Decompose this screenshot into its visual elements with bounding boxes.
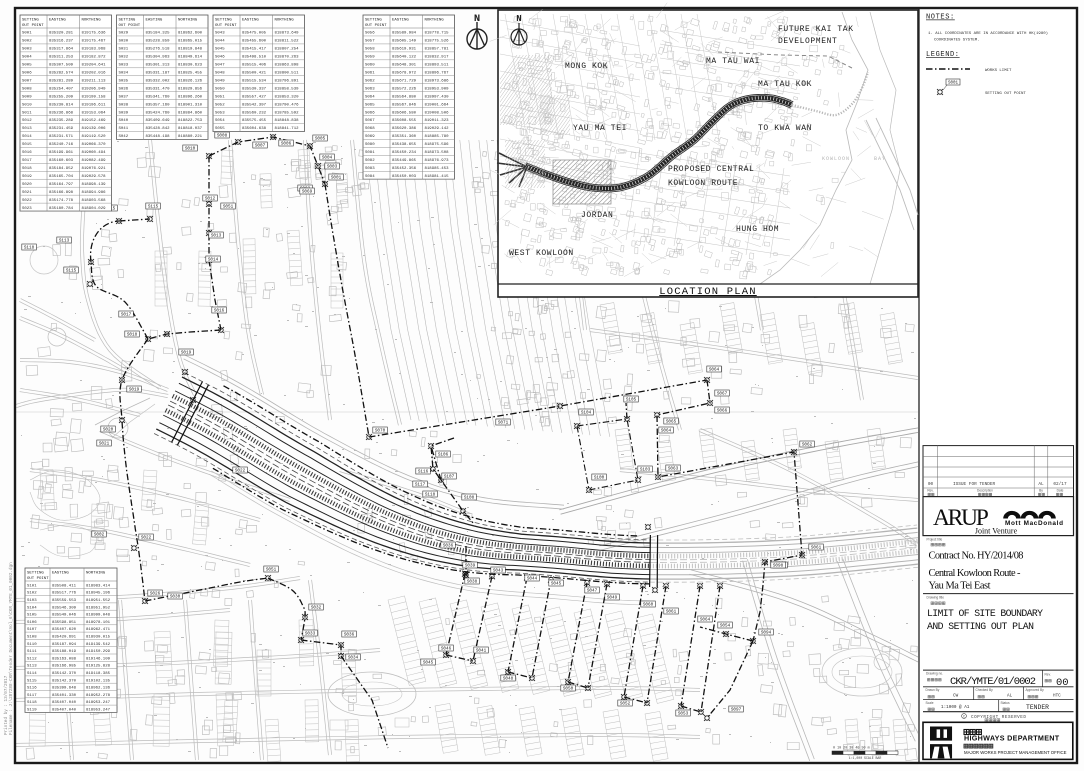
svg-text:819182.872: 819182.872: [82, 56, 107, 60]
svg-text:S039: S039: [119, 111, 129, 115]
svg-text:S017: S017: [22, 159, 32, 163]
svg-text:819199.158: 819199.158: [82, 95, 107, 99]
svg-text:CW: CW: [953, 694, 959, 699]
svg-text:S048: S048: [503, 677, 514, 682]
svg-text:835236.868: 835236.868: [49, 111, 74, 115]
svg-text:S032: S032: [119, 56, 129, 60]
svg-text:818896.260: 818896.260: [178, 95, 203, 99]
svg-text:S002: S002: [22, 40, 32, 44]
svg-text:S066: S066: [365, 111, 375, 115]
svg-text:S107: S107: [444, 475, 455, 480]
svg-text:Status: Status: [1001, 701, 1010, 705]
svg-text:S007: S007: [22, 79, 32, 83]
svg-text:S003: S003: [327, 165, 338, 170]
svg-text:S038: S038: [119, 103, 129, 107]
svg-text:S110: S110: [27, 643, 37, 647]
svg-text:S020: S020: [103, 428, 114, 433]
svg-text:819206.949: 819206.949: [82, 87, 107, 91]
svg-text:819196.611: 819196.611: [82, 103, 107, 107]
svg-text:S030: S030: [170, 595, 181, 600]
svg-text:835255.209: 835255.209: [49, 95, 74, 99]
svg-text:1:1,000 SCALE BAR: 1:1,000 SCALE BAR: [849, 756, 882, 760]
svg-text:S023: S023: [22, 207, 32, 211]
svg-text:S008: S008: [217, 134, 228, 139]
svg-text:NORTHING: NORTHING: [275, 18, 295, 22]
svg-text:S118: S118: [425, 493, 436, 498]
svg-text:S052: S052: [620, 702, 631, 707]
svg-text:Description: Description: [977, 488, 993, 492]
svg-text:Yau Ma Tei East: Yau Ma Tei East: [929, 581, 991, 592]
svg-text:819119.520: 819119.520: [82, 135, 107, 139]
svg-text:835549.046: 835549.046: [52, 614, 77, 618]
svg-text:S008: S008: [22, 87, 32, 91]
svg-text:S046: S046: [441, 647, 452, 652]
svg-text:835455.600: 835455.600: [242, 40, 267, 44]
svg-text:S081: S081: [365, 151, 375, 155]
svg-text:819146.109: 819146.109: [86, 657, 111, 661]
svg-text:S065: S065: [666, 420, 677, 425]
svg-text:819118.385: 819118.385: [86, 672, 111, 676]
svg-text:818841.712: 818841.712: [275, 127, 300, 131]
svg-text:EASTING: EASTING: [242, 18, 259, 22]
svg-text:S107: S107: [27, 628, 37, 632]
svg-text:S067: S067: [717, 392, 728, 397]
svg-text:835311.253: 835311.253: [49, 56, 74, 60]
svg-text:818826.126: 818826.126: [178, 79, 203, 83]
svg-text:819001.664: 819001.664: [425, 103, 450, 107]
svg-text:EASTING: EASTING: [49, 18, 66, 22]
svg-text:S100: S100: [594, 476, 605, 481]
svg-text:S051: S051: [223, 205, 234, 210]
svg-text:818853.320: 818853.320: [275, 95, 300, 99]
svg-text:818830.623: 818830.623: [178, 64, 203, 68]
svg-text:818998.139: 818998.139: [82, 183, 107, 187]
svg-text:835166.898: 835166.898: [49, 191, 74, 195]
svg-text:835608.555: 835608.555: [392, 119, 417, 123]
svg-text:819029.142: 819029.142: [425, 127, 450, 131]
svg-text:835401.330: 835401.330: [52, 694, 77, 698]
svg-text:S047: S047: [215, 64, 225, 68]
svg-text:BAY: BAY: [874, 156, 886, 162]
svg-text:818862.600: 818862.600: [178, 32, 203, 36]
svg-text:S020: S020: [22, 183, 32, 187]
svg-text:818857.781: 818857.781: [425, 48, 450, 52]
svg-text:835452.356: 835452.356: [392, 167, 417, 171]
svg-text:835235.289: 835235.289: [49, 119, 74, 123]
svg-text:S112: S112: [27, 657, 37, 661]
svg-text:S051: S051: [266, 568, 277, 573]
svg-text:Drawing no.: Drawing no.: [926, 672, 943, 676]
svg-text:835517.776: 835517.776: [52, 592, 77, 596]
svg-text:S117: S117: [27, 694, 37, 698]
svg-text:818858.539: 818858.539: [275, 87, 300, 91]
svg-text:819139.542: 819139.542: [86, 643, 111, 647]
svg-text:S018: S018: [127, 333, 138, 338]
svg-text:835331.187: 835331.187: [146, 71, 171, 75]
svg-text:S115: S115: [66, 269, 77, 274]
svg-text:835449.865: 835449.865: [392, 159, 417, 163]
svg-text:S116: S116: [418, 470, 429, 475]
svg-text:818981.415: 818981.415: [425, 175, 450, 179]
svg-text:EASTING: EASTING: [52, 571, 69, 575]
svg-text:SETTING: SETTING: [119, 18, 136, 22]
svg-text:S012: S012: [205, 197, 216, 202]
svg-text:S022: S022: [235, 469, 246, 474]
svg-text:S050: S050: [563, 687, 574, 692]
svg-text:S094: S094: [761, 631, 772, 636]
svg-text:S007: S007: [255, 144, 266, 149]
svg-text:835560.232: 835560.232: [242, 111, 267, 115]
svg-text:835424.760: 835424.760: [146, 111, 171, 115]
svg-text:818978.101: 818978.101: [86, 621, 111, 625]
svg-text:S053: S053: [215, 111, 225, 115]
svg-text:S101: S101: [27, 584, 37, 588]
svg-text:02/17: 02/17: [1053, 482, 1067, 487]
svg-text:835187.094: 835187.094: [52, 643, 77, 647]
svg-text:HUNG HOM: HUNG HOM: [736, 225, 779, 234]
svg-text:S041: S041: [476, 649, 487, 654]
svg-text:SETTING: SETTING: [27, 571, 44, 575]
svg-text:WORKS LIMIT: WORKS LIMIT: [985, 69, 1012, 73]
svg-text:S036: S036: [344, 633, 355, 638]
svg-text:835301.313: 835301.313: [146, 64, 171, 68]
svg-text:S056: S056: [365, 32, 375, 36]
svg-text:819139.006: 819139.006: [82, 127, 107, 131]
svg-text:835606.580: 835606.580: [392, 111, 417, 115]
svg-text:835399.648: 835399.648: [52, 687, 77, 691]
svg-text:S105: S105: [626, 398, 637, 403]
svg-text:Rev.: Rev.: [1045, 673, 1051, 677]
svg-text:S082: S082: [365, 159, 375, 163]
svg-text:S108: S108: [464, 496, 475, 501]
svg-text:KOWLOON: KOWLOON: [822, 156, 850, 162]
svg-text:S069: S069: [365, 135, 375, 139]
svg-text:818953.247: 818953.247: [86, 708, 111, 712]
svg-text:819076.921: 819076.921: [82, 167, 107, 171]
svg-text:835228.859: 835228.859: [146, 40, 171, 44]
svg-text:835542.397: 835542.397: [242, 103, 267, 107]
svg-text:S049: S049: [215, 79, 225, 83]
svg-text:835231.571: 835231.571: [49, 135, 74, 139]
svg-text:S058: S058: [365, 48, 375, 52]
svg-text:S106: S106: [438, 453, 449, 458]
svg-text:S049: S049: [607, 596, 618, 601]
svg-text:S019: S019: [22, 175, 32, 179]
svg-text:S013: S013: [22, 127, 32, 131]
svg-text:S033: S033: [305, 632, 316, 637]
svg-text:HTC: HTC: [1053, 694, 1061, 699]
svg-text:819029.578: 819029.578: [82, 175, 107, 179]
svg-text:S044: S044: [215, 40, 225, 44]
svg-text:835500.421: 835500.421: [242, 71, 267, 75]
svg-text:818863.898: 818863.898: [275, 64, 300, 68]
svg-text:S057: S057: [365, 40, 375, 44]
svg-text:Central Kowloon Route -: Central Kowloon Route -: [929, 568, 1022, 579]
svg-text:835428.842: 835428.842: [146, 127, 171, 131]
svg-text:S064: S064: [661, 429, 672, 434]
svg-text:SETTING OUT POINT: SETTING OUT POINT: [985, 92, 1026, 96]
svg-text:818999.048: 818999.048: [86, 614, 111, 618]
svg-text:S032: S032: [311, 606, 322, 611]
svg-text:S015: S015: [22, 143, 32, 147]
svg-text:S115: S115: [27, 679, 37, 683]
svg-text:835165.704: 835165.704: [49, 175, 74, 179]
svg-text:S013: S013: [211, 234, 222, 239]
svg-text:835605.149: 835605.149: [392, 40, 417, 44]
svg-text:S019: S019: [181, 351, 192, 356]
svg-text:S045: S045: [551, 582, 562, 587]
svg-text:818951.952: 818951.952: [86, 606, 111, 610]
svg-text:S054: S054: [720, 624, 731, 629]
svg-text:00: 00: [1056, 677, 1069, 689]
svg-text:835559.553: 835559.553: [52, 599, 77, 603]
svg-text:S061: S061: [666, 610, 677, 615]
svg-text:818796.891: 818796.891: [275, 79, 300, 83]
svg-text:AND SETTING OUT PLAN: AND SETTING OUT PLAN: [927, 621, 1034, 632]
svg-text:818870.263: 818870.263: [275, 56, 300, 60]
svg-text:818951.552: 818951.552: [86, 599, 111, 603]
svg-text:818873.649: 818873.649: [275, 32, 300, 36]
svg-text:S104: S104: [27, 606, 37, 610]
svg-text:818848.838: 818848.838: [275, 119, 300, 123]
svg-text:S041: S041: [119, 127, 129, 131]
svg-text:S061: S061: [365, 71, 375, 75]
svg-text:835254.407: 835254.407: [49, 87, 74, 91]
svg-text:S021: S021: [22, 191, 32, 195]
svg-text:S097: S097: [731, 708, 742, 713]
svg-text:818976.973: 818976.973: [425, 159, 450, 163]
svg-text:835567.846: 835567.846: [392, 103, 417, 107]
svg-text:818962.136: 818962.136: [86, 687, 111, 691]
svg-text:TO KWA WAN: TO KWA WAN: [758, 124, 812, 133]
svg-text:835304.963: 835304.963: [146, 56, 171, 60]
svg-text:Drawing title: Drawing title: [927, 596, 945, 600]
svg-text:835598.851: 835598.851: [52, 621, 77, 625]
svg-text:S040: S040: [119, 119, 129, 123]
svg-text:S048: S048: [215, 71, 225, 75]
svg-text:NORTHING: NORTHING: [178, 18, 198, 22]
svg-text:835475.005: 835475.005: [242, 32, 267, 36]
svg-text:835142.370: 835142.370: [52, 672, 77, 676]
svg-text:835282.574: 835282.574: [49, 71, 74, 75]
svg-text:835671.729: 835671.729: [392, 79, 417, 83]
svg-text:Approved By: Approved By: [1026, 688, 1045, 692]
svg-text:S043: S043: [493, 569, 504, 574]
svg-text:Project title: Project title: [927, 538, 943, 542]
svg-text:835515.406: 835515.406: [242, 64, 267, 68]
svg-text:819125.828: 819125.828: [86, 665, 111, 669]
svg-text:S022: S022: [141, 536, 152, 541]
svg-text:S044: S044: [527, 577, 538, 582]
svg-text:835331.470: 835331.470: [146, 87, 171, 91]
svg-text:819011.323: 819011.323: [425, 119, 450, 123]
svg-text:LEGEND:: LEGEND:: [926, 51, 960, 59]
svg-text:S106: S106: [27, 621, 37, 625]
svg-text:835231.459: 835231.459: [49, 127, 74, 131]
svg-text:S012: S012: [22, 119, 32, 123]
svg-text:S064: S064: [709, 368, 720, 373]
svg-text:NORTHING: NORTHING: [82, 18, 102, 22]
svg-text:S118: S118: [24, 246, 35, 251]
svg-text:S010: S010: [185, 147, 196, 152]
svg-text:S064: S064: [700, 618, 711, 623]
svg-text:S051: S051: [215, 95, 225, 99]
svg-text:818973.508: 818973.508: [425, 151, 450, 155]
svg-text:S098: S098: [773, 564, 784, 569]
svg-text:S016: S016: [22, 151, 32, 155]
svg-text:OUT POINT: OUT POINT: [365, 24, 387, 28]
svg-text:SETTING: SETTING: [22, 18, 39, 22]
svg-text:S065: S065: [365, 103, 375, 107]
svg-text:OUT POINT: OUT POINT: [22, 24, 44, 28]
svg-text:S055: S055: [215, 127, 225, 131]
svg-text:835619.931: 835619.931: [392, 48, 417, 52]
svg-text:835407.040: 835407.040: [52, 708, 77, 712]
svg-text:AL: AL: [1038, 482, 1044, 487]
svg-text:819204.641: 819204.641: [82, 64, 107, 68]
svg-text:S071: S071: [498, 421, 509, 426]
svg-text:S036: S036: [119, 87, 129, 91]
svg-text:S014: S014: [22, 135, 32, 139]
svg-text:S063: S063: [668, 467, 679, 472]
svg-text:S011: S011: [22, 111, 32, 115]
svg-text:818953.247: 818953.247: [86, 701, 111, 705]
svg-text:JORDAN: JORDAN: [581, 211, 613, 220]
svg-text:OUT POINT: OUT POINT: [27, 577, 49, 581]
svg-text:818849.614: 818849.614: [178, 56, 203, 60]
svg-text:819152.469: 819152.469: [82, 119, 107, 123]
svg-text:S031: S031: [119, 48, 129, 52]
svg-text:S114: S114: [27, 672, 37, 676]
svg-text:818775.526: 818775.526: [425, 40, 450, 44]
svg-text:835420.691: 835420.691: [52, 635, 77, 639]
svg-text:835164.797: 835164.797: [49, 183, 74, 187]
svg-text:835174.778: 835174.778: [49, 199, 74, 203]
svg-text:835415.417: 835415.417: [242, 48, 267, 52]
svg-text:S001: S001: [331, 176, 342, 181]
svg-text:835276.518: 835276.518: [146, 48, 171, 52]
svg-text:835351.360: 835351.360: [392, 135, 417, 139]
svg-text:S063: S063: [365, 87, 375, 91]
svg-text:819060.494: 819060.494: [82, 151, 107, 155]
svg-text:835230.814: 835230.814: [49, 103, 74, 107]
svg-text:OUT POINT: OUT POINT: [215, 24, 237, 28]
svg-text:S054: S054: [215, 119, 225, 123]
svg-text:818985.453: 818985.453: [425, 167, 450, 171]
svg-text:835316.237: 835316.237: [49, 40, 74, 44]
svg-text:835332.002: 835332.002: [146, 79, 171, 83]
svg-text:835589.984: 835589.984: [392, 32, 417, 36]
svg-text:835142.370: 835142.370: [52, 679, 77, 683]
svg-text:YAU MA TEI: YAU MA TEI: [573, 124, 627, 133]
svg-text:S016: S016: [214, 309, 225, 314]
svg-text:818790.476: 818790.476: [275, 103, 300, 107]
svg-text:819066.370: 819066.370: [82, 143, 107, 147]
svg-text:NOTES:: NOTES:: [926, 14, 955, 22]
svg-text:SETTING: SETTING: [365, 18, 382, 22]
svg-text:S103: S103: [640, 468, 651, 473]
svg-text:EASTING: EASTING: [392, 18, 409, 22]
svg-text:835546.309: 835546.309: [52, 606, 77, 610]
svg-text:835240.716: 835240.716: [49, 143, 74, 147]
svg-text:CKR/YMTE/01/0002: CKR/YMTE/01/0002: [950, 676, 1036, 688]
svg-text:818893.511: 818893.511: [425, 64, 450, 68]
svg-text:LIMIT OF SITE BOUNDARY: LIMIT OF SITE BOUNDARY: [927, 608, 1043, 619]
svg-text:835498.510: 835498.510: [242, 56, 267, 60]
svg-text:By: By: [1039, 488, 1043, 492]
svg-text:835199.961: 835199.961: [49, 151, 74, 155]
svg-text:S050: S050: [215, 87, 225, 91]
svg-text:S061: S061: [811, 546, 822, 551]
svg-text:HIGHWAYS DEPARTMENT: HIGHWAYS DEPARTMENT: [964, 734, 1060, 743]
svg-text:835640.122: 835640.122: [392, 56, 417, 60]
svg-text:818997.430: 818997.430: [425, 95, 450, 99]
svg-text:S115: S115: [148, 205, 159, 210]
svg-text:819175.636: 819175.636: [82, 32, 107, 36]
svg-text:S045: S045: [215, 48, 225, 52]
svg-text:S066: S066: [717, 409, 728, 414]
svg-text:NORTHING: NORTHING: [86, 571, 106, 575]
svg-text:818807.254: 818807.254: [275, 48, 300, 52]
svg-text:NORTHING: NORTHING: [425, 18, 445, 22]
svg-text:S060: S060: [365, 64, 375, 68]
svg-text:MA TAU WAI: MA TAU WAI: [706, 57, 760, 66]
svg-text:S068: S068: [365, 127, 375, 131]
svg-text:MONG KOK: MONG KOK: [565, 62, 608, 71]
svg-text:Date: Date: [1057, 488, 1064, 492]
svg-text:818930.015: 818930.015: [86, 635, 111, 639]
svg-text:Checked By: Checked By: [976, 688, 994, 692]
svg-text:819183.968: 819183.968: [82, 48, 107, 52]
svg-text:S034: S034: [119, 71, 129, 75]
svg-text:819102.135: 819102.135: [86, 679, 111, 683]
svg-text:Drawn By: Drawn By: [926, 688, 940, 692]
svg-text:KOWLOON ROUTE: KOWLOON ROUTE: [668, 179, 738, 188]
svg-text:S070: S070: [375, 429, 386, 434]
svg-text:S105: S105: [27, 614, 37, 618]
svg-text:819202.016: 819202.016: [82, 71, 107, 75]
svg-text:FUTURE KAI TAK: FUTURE KAI TAK: [778, 25, 854, 34]
svg-text:SETTING: SETTING: [215, 18, 232, 22]
svg-text:S104: S104: [581, 411, 592, 416]
svg-text:819008.506: 819008.506: [425, 111, 450, 115]
svg-text:S035: S035: [119, 79, 129, 83]
svg-text:S017: S017: [121, 313, 132, 318]
svg-text:S067: S067: [365, 119, 375, 123]
svg-text:835407.040: 835407.040: [52, 701, 77, 705]
svg-text:AL: AL: [1007, 694, 1013, 699]
svg-text:WEST KOWLOON: WEST KOWLOON: [509, 249, 574, 258]
svg-text:818962.471: 818962.471: [86, 628, 111, 632]
svg-text:835409.649: 835409.649: [146, 119, 171, 123]
svg-text:0 10 20 30 40 50 m: 0 10 20 30 40 50 m: [833, 747, 870, 751]
svg-text:Scale: Scale: [926, 701, 934, 705]
svg-text:S009: S009: [22, 95, 32, 99]
svg-text:835357.160: 835357.160: [146, 103, 171, 107]
svg-text:835163.088: 835163.088: [52, 657, 77, 661]
svg-text:LOCATION PLAN: LOCATION PLAN: [659, 286, 757, 298]
svg-text:S014: S014: [208, 258, 219, 263]
svg-text:EASTING: EASTING: [146, 18, 163, 22]
svg-text:835180.784: 835180.784: [49, 207, 74, 211]
svg-text:S026: S026: [150, 592, 161, 597]
svg-text:835317.864: 835317.864: [49, 48, 74, 52]
svg-text:S039: S039: [465, 564, 476, 569]
svg-text:S037: S037: [119, 95, 129, 99]
svg-text:819153.064: 819153.064: [82, 111, 107, 115]
svg-text:S102: S102: [27, 592, 37, 596]
svg-text:818952.278: 818952.278: [86, 694, 111, 698]
